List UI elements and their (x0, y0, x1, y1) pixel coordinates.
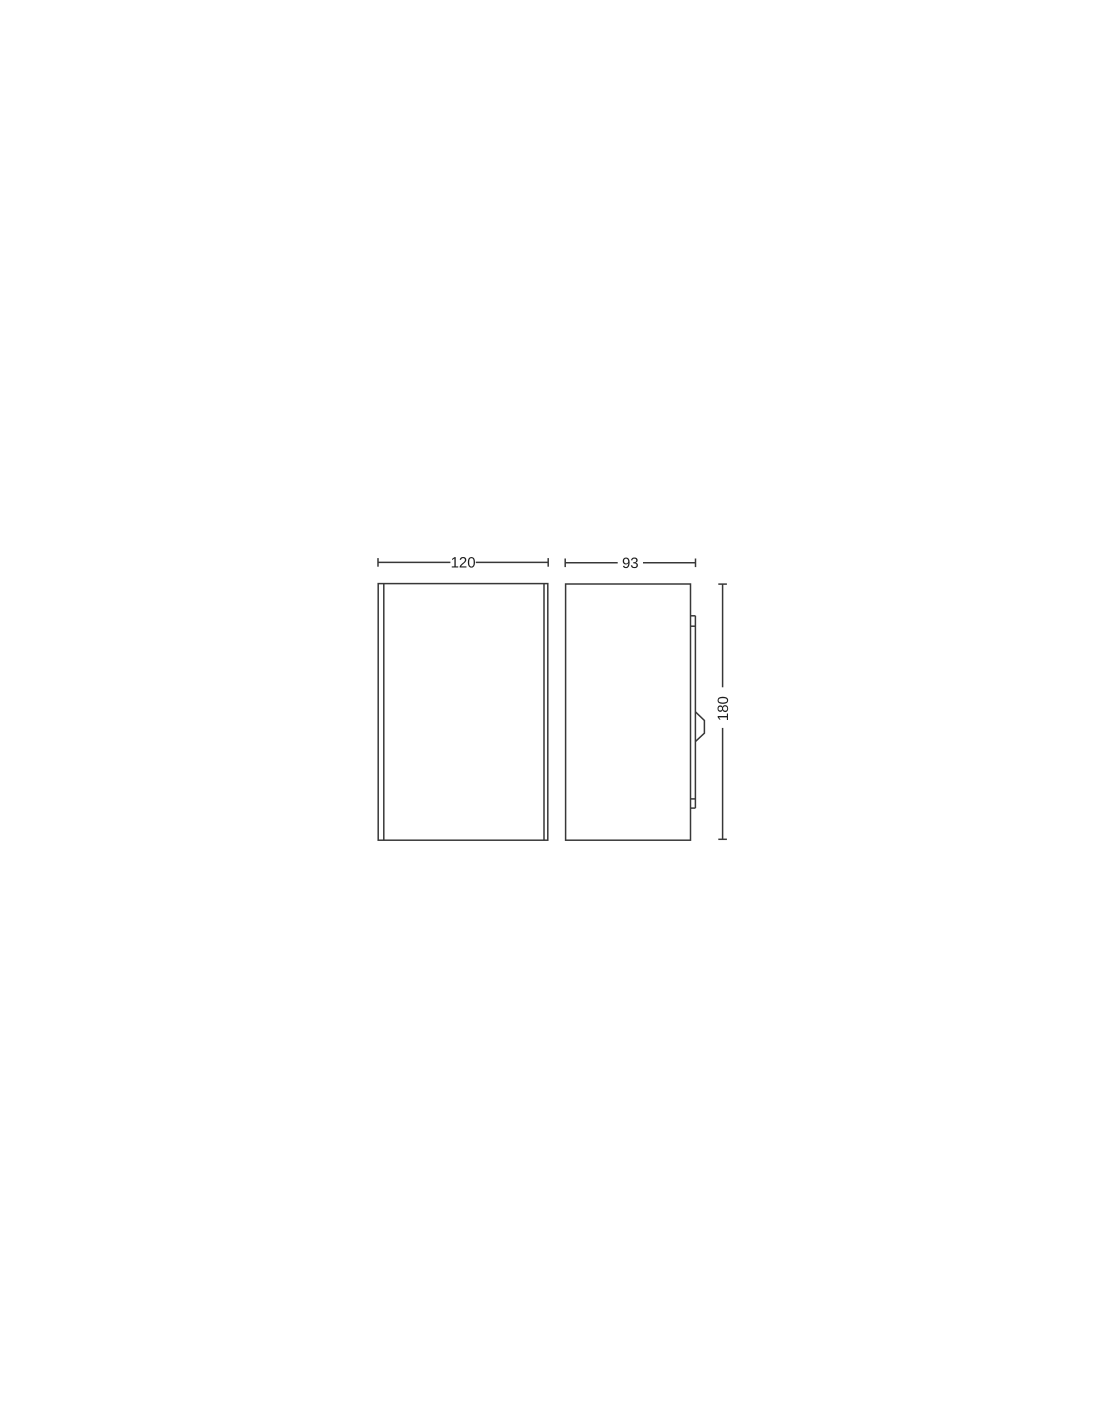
svg-text:180: 180 (715, 696, 732, 721)
svg-text:93: 93 (622, 555, 639, 572)
svg-text:120: 120 (451, 555, 476, 572)
